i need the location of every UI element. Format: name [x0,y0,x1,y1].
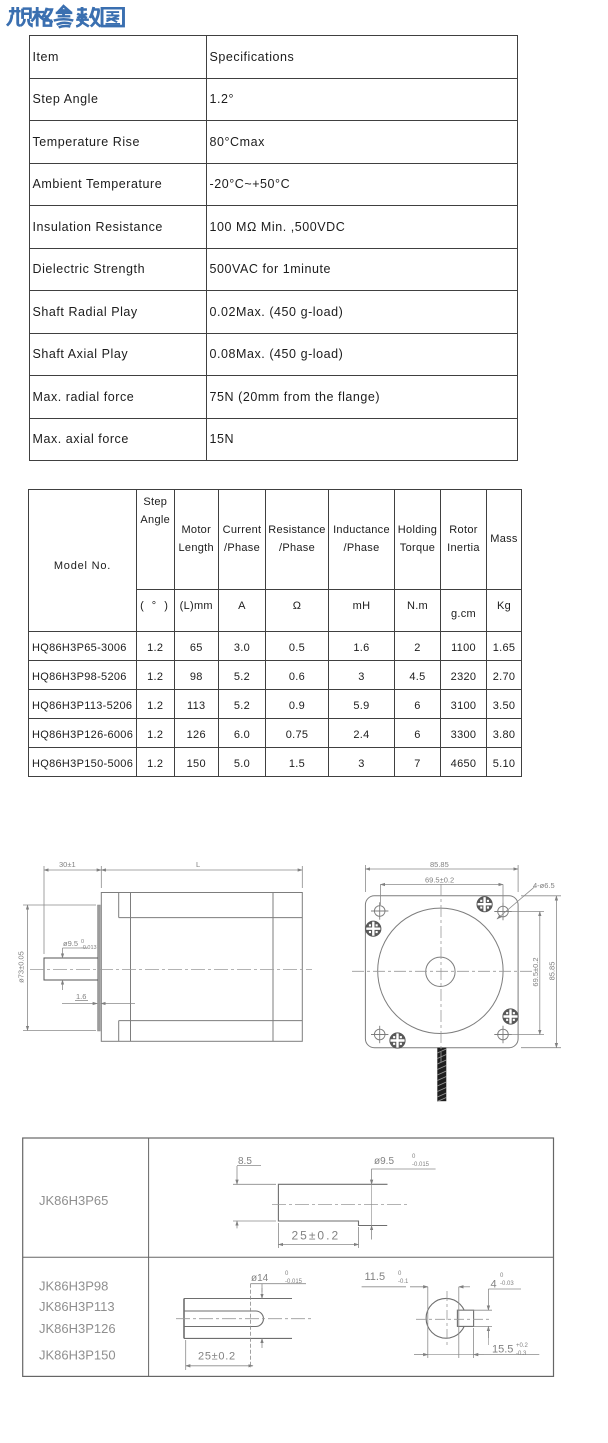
svg-text:-0.3: -0.3 [516,1351,527,1357]
svg-text:JK86H3P126: JK86H3P126 [39,1321,116,1336]
svg-text:85.85: 85.85 [548,962,557,981]
svg-text:0: 0 [500,1273,504,1279]
svg-text:0: 0 [285,1271,289,1277]
svg-text:-0.015: -0.015 [412,1162,430,1168]
svg-text:25±0.2: 25±0.2 [292,1229,341,1243]
svg-text:ø9.5: ø9.5 [63,939,78,948]
svg-text:85.85: 85.85 [430,860,449,869]
svg-text:JK86H3P65: JK86H3P65 [39,1193,108,1208]
svg-text:69.5±0.2: 69.5±0.2 [425,876,454,885]
svg-text:4: 4 [491,1279,497,1291]
svg-text:30±1: 30±1 [59,860,76,869]
svg-text:+0.2: +0.2 [516,1343,529,1349]
svg-text:69.5±0.2: 69.5±0.2 [531,957,540,986]
svg-text:ø14: ø14 [251,1273,269,1284]
svg-text:L: L [196,860,200,869]
svg-text:-0.015: -0.015 [285,1279,303,1285]
svg-text:JK86H3P150: JK86H3P150 [39,1348,116,1363]
svg-text:-0.1: -0.1 [398,1279,409,1285]
svg-text:4-ø6.5: 4-ø6.5 [533,881,555,890]
svg-text:JK86H3P98: JK86H3P98 [39,1279,108,1294]
svg-text:JK86H3P113: JK86H3P113 [39,1299,115,1314]
svg-text:25±0.2: 25±0.2 [198,1351,236,1363]
svg-text:0: 0 [398,1271,402,1277]
svg-text:8.5: 8.5 [238,1156,252,1167]
svg-text:-0.013: -0.013 [81,945,97,951]
svg-text:11.5: 11.5 [365,1271,386,1283]
svg-text:1.6: 1.6 [76,992,86,1001]
svg-text:-0.03: -0.03 [500,1281,514,1287]
svg-text:0: 0 [412,1154,416,1160]
svg-text:ø9.5: ø9.5 [374,1156,394,1167]
svg-text:ø73±0.05: ø73±0.05 [17,951,26,983]
svg-text:15.5: 15.5 [492,1344,513,1356]
